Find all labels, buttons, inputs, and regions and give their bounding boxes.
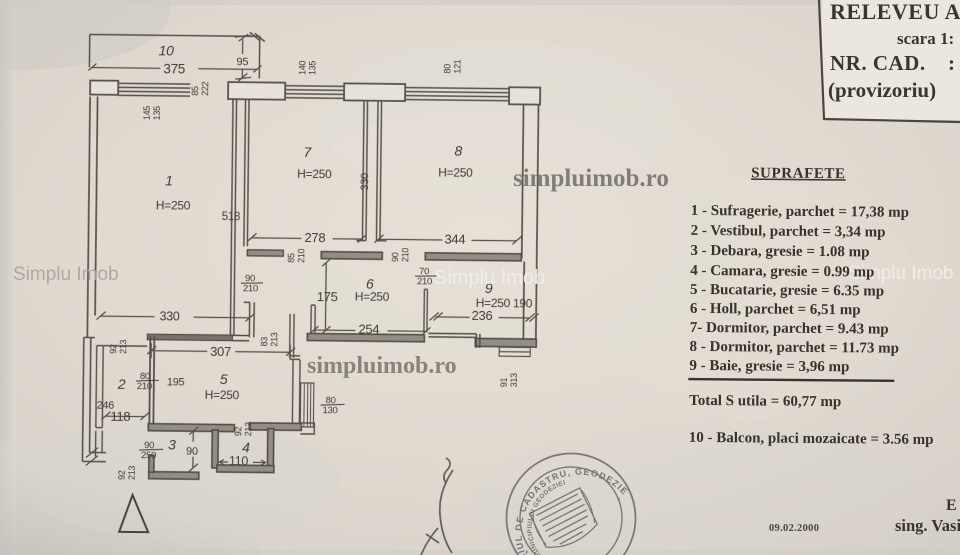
svg-text:7- Dormitor, parchet = 9.43 mp: 7- Dormitor, parchet = 9.43 mp [690, 320, 889, 338]
svg-text:10: 10 [159, 42, 175, 58]
svg-text:90: 90 [390, 252, 400, 262]
svg-text:130: 130 [322, 405, 337, 416]
svg-text:250: 250 [141, 450, 156, 461]
svg-text:83: 83 [259, 337, 269, 347]
svg-text:90: 90 [186, 446, 198, 458]
svg-text:210: 210 [296, 248, 306, 263]
svg-text:95: 95 [236, 56, 248, 68]
svg-text:8: 8 [454, 143, 462, 159]
svg-text:sing. Vasil: sing. Vasil [895, 516, 960, 535]
svg-text:4 - Camara, gresie = 0.99 mp: 4 - Camara, gresie = 0.99 mp [690, 263, 874, 281]
svg-text:85: 85 [190, 86, 200, 96]
svg-text:246: 246 [96, 400, 114, 412]
svg-text:09.02.2000: 09.02.2000 [769, 523, 819, 534]
svg-text:375: 375 [163, 61, 185, 76]
svg-text:121: 121 [452, 59, 462, 74]
svg-text:scara 1:: scara 1: [897, 29, 954, 48]
svg-text:H=250: H=250 [156, 198, 191, 212]
svg-text:Total S utila = 60,77 mp: Total S utila = 60,77 mp [689, 393, 841, 410]
svg-text:9 - Baie, gresie = 3,96 mp: 9 - Baie, gresie = 3,96 mp [689, 358, 849, 375]
svg-text:175: 175 [317, 289, 338, 304]
svg-text:210: 210 [137, 381, 152, 392]
svg-text:344: 344 [444, 232, 465, 247]
svg-text:213: 213 [127, 466, 137, 481]
svg-text:Simplu Imob: Simplu Imob [13, 264, 119, 285]
svg-text:H=250: H=250 [297, 167, 332, 181]
svg-text:80: 80 [442, 64, 452, 74]
svg-text:254: 254 [358, 322, 379, 337]
svg-text:222: 222 [200, 81, 210, 96]
svg-text:8 - Dormitor, parchet = 11.73: 8 - Dormitor, parchet = 11.73 mp [690, 339, 900, 357]
svg-text:E: E [946, 497, 957, 514]
svg-text:2 - Vestibul, parchet = 3,34 m: 2 - Vestibul, parchet = 3,34 mp [691, 223, 886, 241]
svg-text:145: 145 [142, 106, 152, 121]
svg-text:3 - Debara, gresie = 1.08 mp: 3 - Debara, gresie = 1.08 mp [690, 243, 869, 261]
svg-text:10 - Balcon, placi mozaicate =: 10 - Balcon, placi mozaicate = 3.56 mp [689, 430, 934, 448]
svg-text:518: 518 [222, 211, 240, 223]
svg-text:236: 236 [472, 308, 493, 323]
svg-text:195: 195 [167, 376, 185, 388]
svg-text:135: 135 [152, 106, 162, 121]
svg-text:H=250: H=250 [438, 165, 473, 179]
svg-text:3: 3 [168, 436, 176, 452]
svg-text:91: 91 [499, 377, 509, 387]
svg-text:85: 85 [286, 253, 296, 263]
svg-text:313: 313 [509, 373, 519, 388]
svg-text:213: 213 [243, 422, 253, 437]
svg-text:330: 330 [359, 173, 371, 191]
svg-text:Simplu Imob: Simplu Imob [434, 267, 545, 289]
svg-text:135: 135 [307, 61, 317, 76]
svg-text:140: 140 [297, 60, 307, 75]
svg-text:92: 92 [233, 426, 243, 436]
svg-text:1: 1 [165, 172, 173, 188]
svg-text:210: 210 [400, 248, 410, 263]
svg-text:2: 2 [117, 376, 126, 392]
svg-text:330: 330 [159, 309, 179, 323]
svg-text:1 - Sufragerie, parchet = 17,3: 1 - Sufragerie, parchet = 17,38 mp [691, 203, 909, 221]
svg-text:simpluimob.ro: simpluimob.ro [513, 165, 669, 192]
svg-text:92: 92 [108, 344, 118, 354]
svg-text::: : [948, 51, 955, 75]
svg-text:5: 5 [220, 371, 228, 387]
svg-text:SUPRAFETE: SUPRAFETE [751, 165, 846, 182]
svg-text:278: 278 [304, 230, 325, 245]
svg-text:4: 4 [242, 439, 250, 455]
svg-text:simpluimob.ro: simpluimob.ro [307, 353, 457, 379]
svg-text:307: 307 [210, 344, 231, 359]
svg-text:210: 210 [417, 276, 432, 287]
svg-text:92: 92 [117, 470, 127, 480]
svg-text:6 - Holl, parchet = 6,51 mp: 6 - Holl, parchet = 6,51 mp [690, 301, 861, 318]
svg-text:210: 210 [243, 283, 258, 294]
svg-text:H=250: H=250 [205, 388, 240, 402]
svg-text:(provizoriu): (provizoriu) [828, 78, 936, 102]
svg-text:RELEVEU AP: RELEVEU AP [830, 0, 960, 24]
svg-text:110: 110 [229, 454, 249, 468]
svg-text:5 - Bucatarie, gresie = 6.35 m: 5 - Bucatarie, gresie = 6.35 mp [690, 282, 884, 300]
svg-text:H=250: H=250 [355, 290, 390, 304]
svg-text:213: 213 [269, 332, 279, 347]
svg-text:NR. CAD.: NR. CAD. [830, 51, 926, 75]
svg-text:213: 213 [118, 339, 128, 354]
